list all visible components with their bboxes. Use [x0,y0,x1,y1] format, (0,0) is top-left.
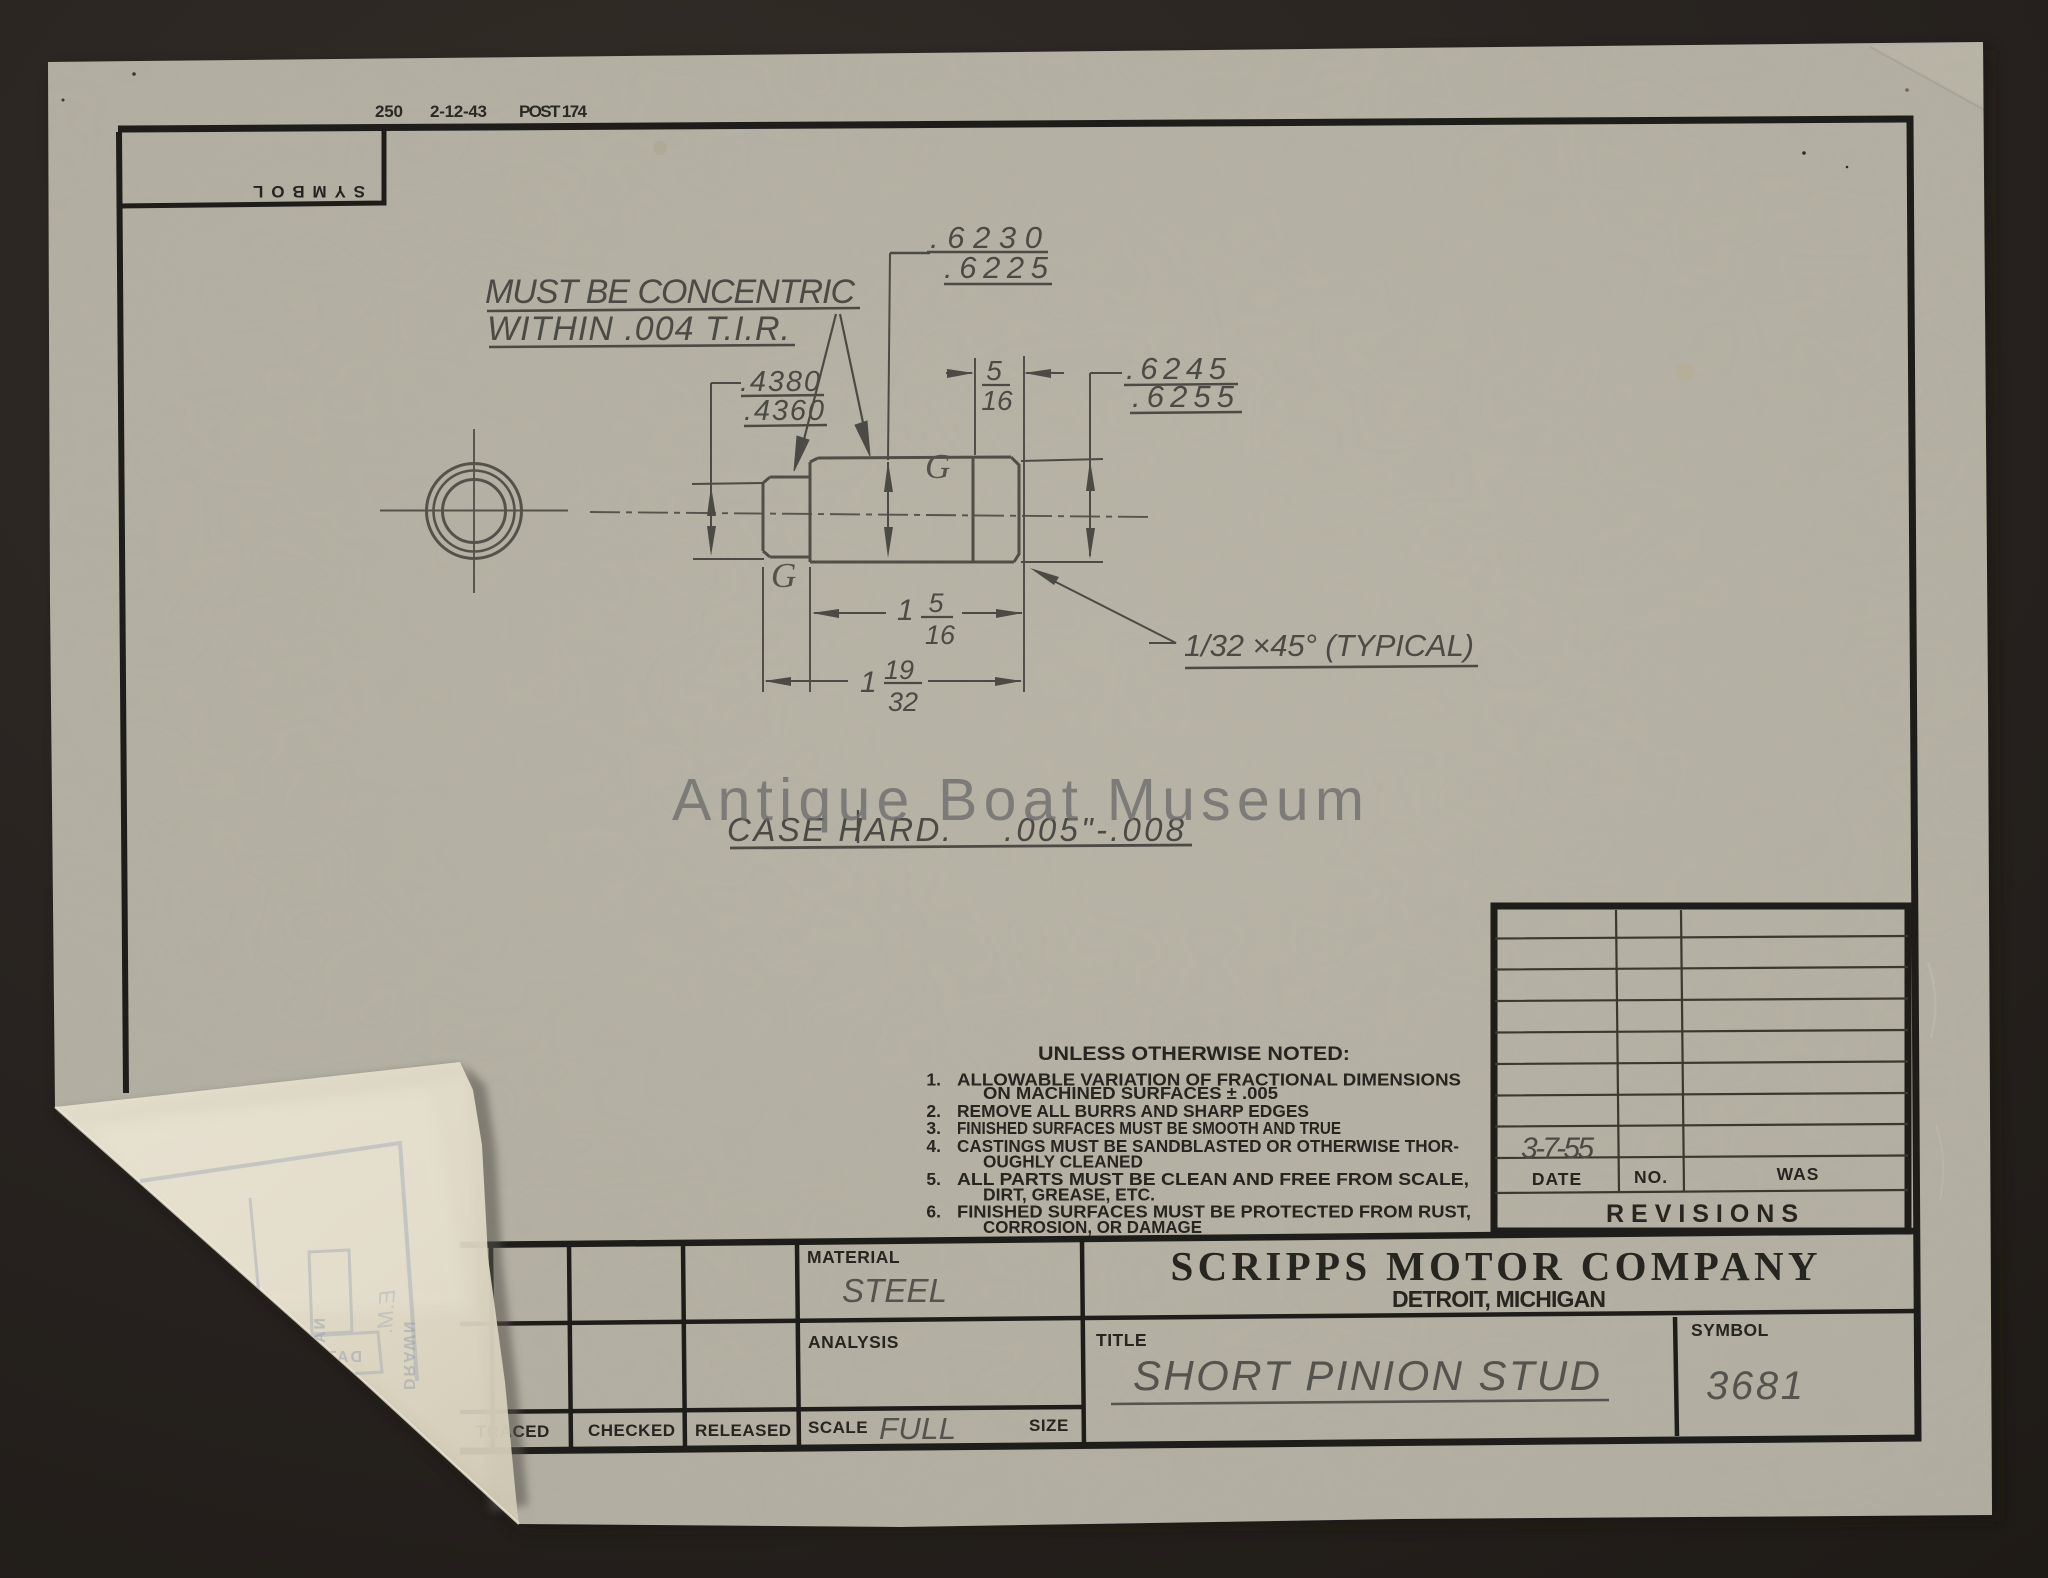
svg-text:DRAWN: DRAWN [400,1320,417,1390]
svg-text:TITLE: TITLE [1096,1330,1147,1350]
svg-text:MUST BE CONCENTRIC: MUST BE CONCENTRIC [485,273,855,311]
svg-text:MATERIAL: MATERIAL [807,1247,900,1267]
svg-text:UNLESS OTHERWISE NOTED:: UNLESS OTHERWISE NOTED: [1038,1043,1350,1065]
svg-text:STEEL: STEEL [842,1272,947,1309]
svg-text:3-7-55: 3-7-55 [1521,1132,1594,1165]
svg-text:4.: 4. [926,1136,941,1156]
svg-text:DATE: DATE [1532,1169,1582,1189]
svg-text:SYMBOL: SYMBOL [1691,1320,1769,1340]
svg-text:DETROIT, MICHIGAN: DETROIT, MICHIGAN [1392,1286,1606,1312]
svg-text:250: 250 [375,102,403,121]
svg-text:G: G [925,447,950,486]
svg-text:16: 16 [925,620,956,650]
svg-text:E.M.: E.M. [372,1289,400,1336]
svg-text:6.: 6. [926,1202,941,1222]
svg-text:RELEASED: RELEASED [695,1421,792,1440]
svg-text:3.: 3. [926,1118,941,1138]
svg-text:5: 5 [928,588,944,618]
svg-text:1/32 ×45° (TYPICAL): 1/32 ×45° (TYPICAL) [1184,628,1474,663]
svg-text:CORROSION, OR DAMAGE: CORROSION, OR DAMAGE [983,1217,1202,1237]
svg-text:SHORT PINION STUD: SHORT PINION STUD [1133,1352,1600,1399]
svg-text:FINISHED SURFACES MUST BE SMOO: FINISHED SURFACES MUST BE SMOOTH AND TRU… [957,1118,1341,1138]
svg-text:5.: 5. [926,1169,941,1189]
svg-text:REVISIONS: REVISIONS [1606,1200,1798,1228]
svg-text:FULL: FULL [879,1411,956,1446]
svg-text:.4360: .4360 [744,395,824,427]
svg-text:WAS: WAS [1777,1164,1820,1184]
svg-text:G: G [771,556,796,595]
svg-text:ANALYSIS: ANALYSIS [808,1332,899,1352]
svg-text:SCALE: SCALE [808,1418,868,1437]
svg-text:ON MACHINED SURFACES ± .005: ON MACHINED SURFACES ± .005 [983,1083,1278,1103]
svg-text:SIZE: SIZE [1029,1416,1069,1435]
svg-text:.6225: .6225 [944,250,1049,285]
svg-text:NO.: NO. [1634,1167,1668,1187]
svg-text:CHECKED: CHECKED [588,1421,676,1440]
svg-text:POST 174: POST 174 [519,102,588,121]
svg-text:.4380: .4380 [740,366,820,398]
svg-text:1: 1 [860,666,877,699]
svg-text:5: 5 [986,355,1002,386]
svg-text:19: 19 [884,655,914,685]
svg-text:WITHIN .004 T.I.R.: WITHIN .004 T.I.R. [487,310,790,348]
svg-text:16: 16 [981,385,1013,416]
svg-text:1: 1 [897,594,914,627]
svg-text:32: 32 [888,687,918,717]
svg-text:2-12-43: 2-12-43 [430,102,487,121]
svg-text:1.: 1. [926,1070,941,1090]
